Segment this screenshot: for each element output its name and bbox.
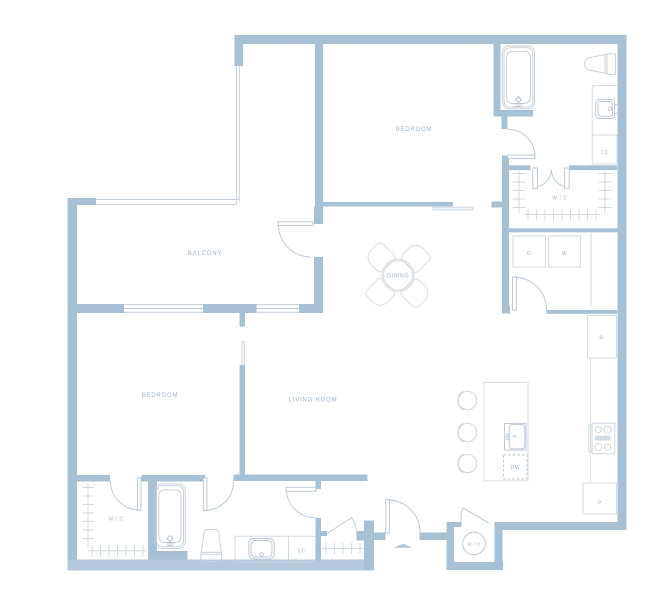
svg-text:BEDROOM: BEDROOM: [396, 127, 433, 133]
svg-text:LC: LC: [298, 549, 306, 555]
svg-text:DW: DW: [511, 465, 521, 471]
svg-text:W.I.C: W.I.C: [108, 517, 123, 523]
svg-text:BEDROOM: BEDROOM: [142, 393, 179, 399]
svg-text:R: R: [599, 336, 603, 342]
svg-text:P: P: [598, 501, 602, 507]
svg-text:W: W: [562, 251, 567, 257]
svg-text:O: O: [527, 251, 532, 257]
svg-text:DINING: DINING: [387, 274, 409, 280]
svg-text:W.I.C: W.I.C: [552, 196, 567, 202]
svg-text:LIVING ROOM: LIVING ROOM: [289, 398, 338, 404]
svg-text:LC: LC: [601, 150, 609, 156]
svg-text:W / H: W / H: [467, 542, 480, 547]
svg-text:BALCONY: BALCONY: [188, 251, 222, 257]
